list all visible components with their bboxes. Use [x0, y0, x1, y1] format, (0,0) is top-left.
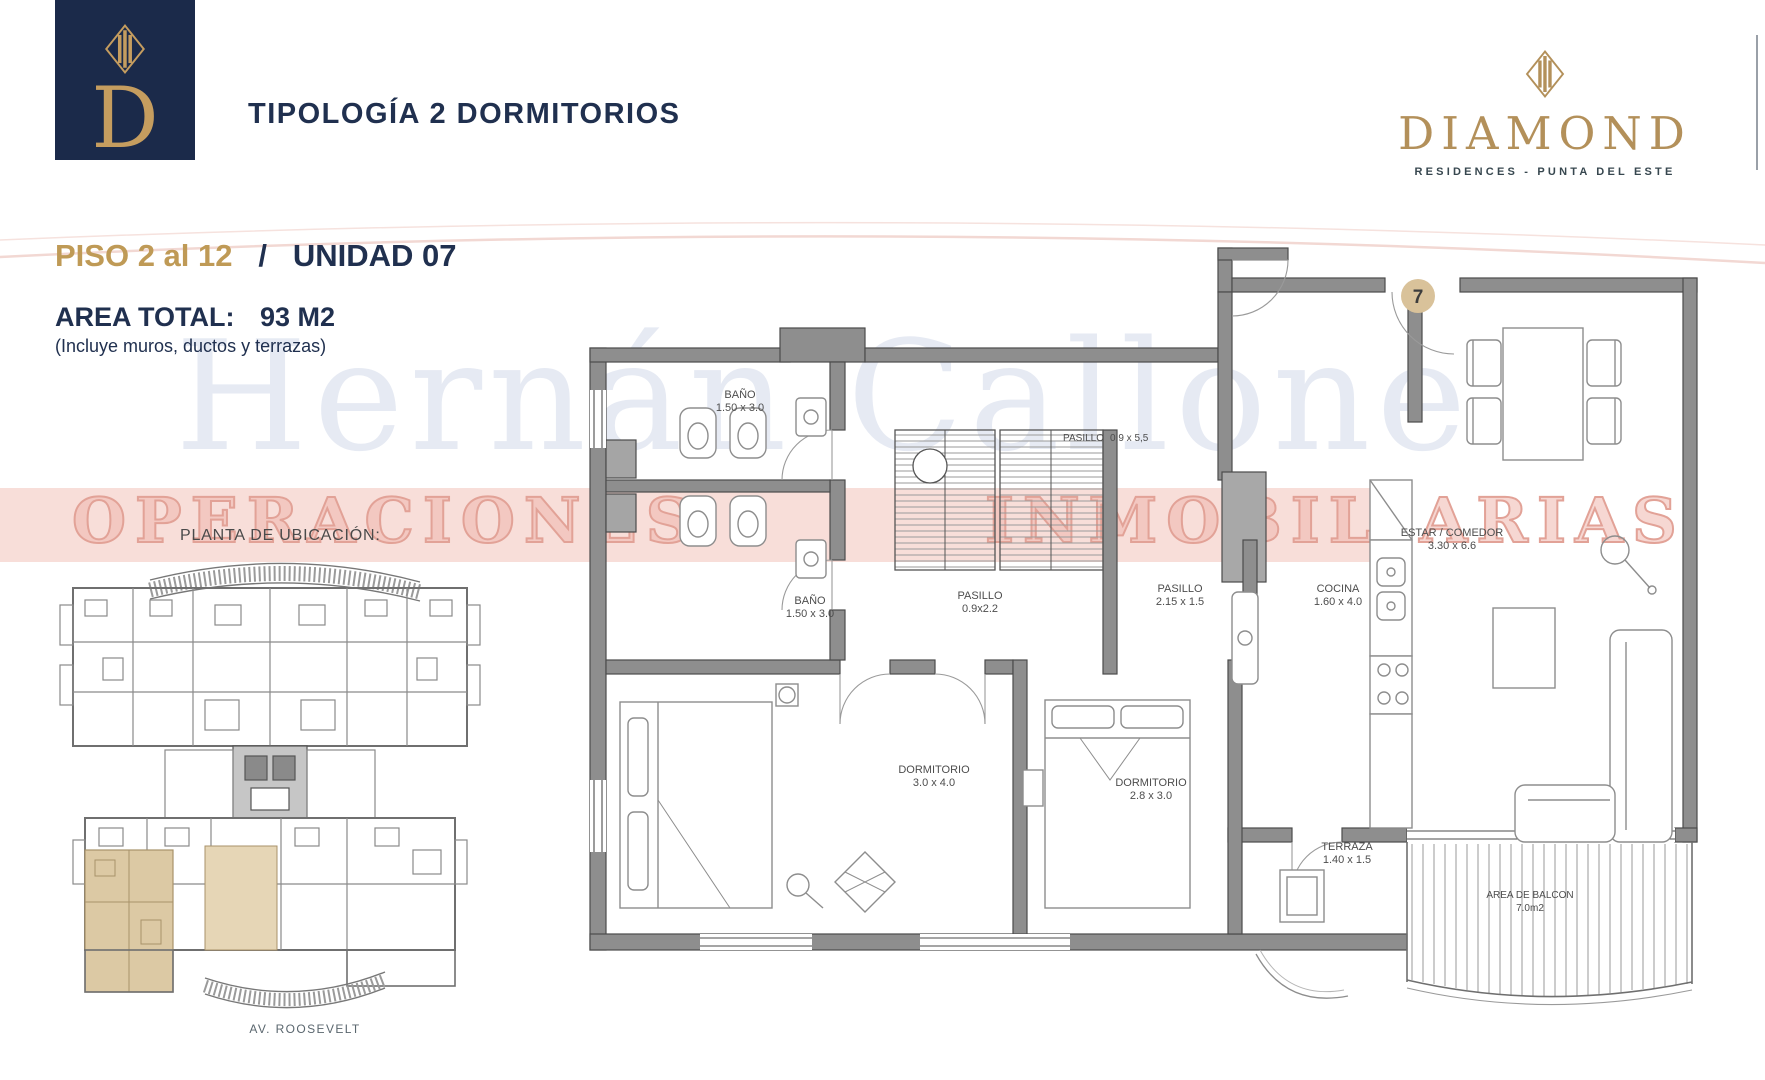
bedroom2-furniture	[1023, 700, 1190, 908]
closets	[895, 430, 1103, 570]
label-cocina-name: COCINA	[1317, 583, 1360, 595]
label-pasillo1-name: PASILLO	[1063, 433, 1104, 444]
label-pasillo2-dims: 0.9x2.2	[962, 603, 998, 615]
unit-number: 7	[1413, 287, 1424, 308]
street-label: AV. ROOSEVELT	[205, 1022, 405, 1036]
bedroom1-furniture	[620, 684, 895, 912]
brand-tagline: RESIDENCES - PUNTA DEL ESTE	[1380, 166, 1710, 178]
label-cocina-dims: 1.60 x 4.0	[1314, 596, 1362, 608]
page-title: TIPOLOGÍA 2 DORMITORIOS	[248, 98, 680, 131]
label-balcon-dims: 7.0m2	[1516, 903, 1544, 914]
floor-label: PISO 2 al 12	[55, 238, 233, 273]
location-plan-label: PLANTA DE UBICACIÓN:	[180, 527, 381, 545]
label-bano2-name: BAÑO	[794, 594, 826, 607]
label-balcon-name: AREA DE BALCON	[1486, 890, 1573, 901]
unit-label: UNIDAD 07	[293, 238, 457, 273]
balcony	[1256, 842, 1692, 1005]
diamond-icon	[99, 24, 151, 74]
label-pasillo3-name: PASILLO	[1157, 583, 1202, 595]
living-furniture	[1493, 536, 1672, 842]
unit-number-badge: 7	[1401, 279, 1435, 313]
label-dorm2-name: DORMITORIO	[1115, 777, 1187, 789]
page-edge-line	[1756, 35, 1758, 170]
label-pasillo3-dims: 2.15 x 1.5	[1156, 596, 1204, 608]
dining-table	[1467, 328, 1621, 460]
label-estar-name: ESTAR / COMEDOR	[1401, 527, 1504, 539]
site-plan	[55, 550, 485, 1012]
label-pasillo1-dims: 0.9 x 5,5	[1110, 433, 1149, 444]
label-terraza-dims: 1.40 x 1.5	[1323, 854, 1371, 866]
area-note: (Incluye muros, ductos y terrazas)	[55, 336, 326, 357]
brand-diamond-icon	[1525, 50, 1565, 98]
label-terraza-name: TERRAZA	[1321, 841, 1373, 853]
site-plan-highlighted-unit	[85, 846, 277, 992]
label-bano1-name: BAÑO	[724, 388, 756, 401]
label-estar-dims: 3.30 x 6.6	[1428, 540, 1476, 552]
separator: /	[258, 238, 267, 273]
label-pasillo2-name: PASILLO	[957, 590, 1002, 602]
area-value: 93 M2	[260, 302, 335, 332]
brand-logo: DIAMOND RESIDENCES - PUNTA DEL ESTE	[1380, 50, 1710, 178]
label-dorm2-dims: 2.8 x 3.0	[1130, 790, 1172, 802]
main-floor-plan: 7 BAÑO 1.50 x 3.0 PASILLO 0.9 x 5,5 BAÑO…	[580, 240, 1700, 1010]
area-total-line: AREA TOTAL: 93 M2	[55, 302, 335, 333]
brand-name: DIAMOND	[1380, 107, 1710, 160]
terrace-fixtures	[1280, 870, 1324, 922]
label-dorm1-dims: 3.0 x 4.0	[913, 777, 955, 789]
logo-letter: D	[91, 76, 158, 160]
floor-unit-line: PISO 2 al 12 / UNIDAD 07	[55, 238, 457, 274]
label-bano2-dims: 1.50 x 3.0	[786, 608, 834, 620]
label-dorm1-name: DORMITORIO	[898, 764, 970, 776]
area-label: AREA TOTAL:	[55, 302, 234, 332]
label-bano1-dims: 1.50 x 3.0	[716, 402, 764, 414]
logo-box: D	[55, 0, 195, 160]
